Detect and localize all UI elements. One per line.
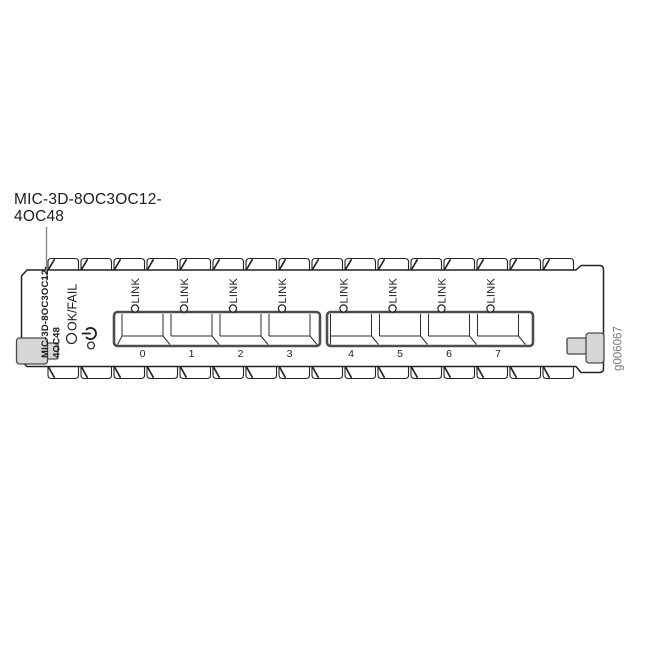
okfail-label: OK/FAIL [66,284,80,331]
right-thumbscrew-head [586,333,604,363]
port-0-link-label: LINK [130,277,142,303]
port-5-link-label: LINK [388,277,400,303]
port-1-link-label: LINK [179,277,191,303]
port-4-link-led [340,305,347,312]
okfail-led [67,334,77,344]
port-6-link-label: LINK [437,277,449,303]
port-7-number: 7 [495,348,501,360]
port-group-4-7 [327,312,533,346]
port-2-link-led [229,305,236,312]
port-6-link-led [438,305,445,312]
port-group-0-3 [114,312,320,346]
figure-id-label: g006067 [613,326,625,371]
port-7-link-label: LINK [486,277,498,303]
callout-label-line2: 4OC48 [14,208,64,225]
port-7-link-led [487,305,494,312]
port-2-number: 2 [238,348,244,360]
port-2-link-label: LINK [228,277,240,303]
port-0-link-led [131,305,138,312]
faceplate-bottom-edge-tabs [48,367,574,379]
faceplate-model-label-line2: 4OC48 [52,327,63,358]
port-5-number: 5 [397,348,403,360]
figure: MIC-3D-8OC3OC12- 4OC48 MIC-3D-8OC3OC12- … [0,0,650,650]
callout: MIC-3D-8OC3OC12- 4OC48 [14,191,162,225]
faceplate-model-label-line1: MIC-3D-8OC3OC12- [40,266,51,358]
port-4-number: 4 [348,348,354,360]
port-4-link-label: LINK [339,277,351,303]
port-1-number: 1 [189,348,195,360]
port-3-link-led [278,305,285,312]
faceplate-top-edge-tabs [48,259,574,271]
port-6-number: 6 [446,348,452,360]
port-3-link-label: LINK [277,277,289,303]
mic-faceplate-diagram: MIC-3D-8OC3OC12- 4OC48 MIC-3D-8OC3OC12- … [0,0,650,650]
port-0-number: 0 [140,348,146,360]
callout-label-line1: MIC-3D-8OC3OC12- [14,191,162,208]
port-3-number: 3 [287,348,293,360]
right-thumbscrew-neck [567,338,587,354]
port-1-link-led [180,305,187,312]
port-5-link-led [389,305,396,312]
power-led [88,342,95,349]
